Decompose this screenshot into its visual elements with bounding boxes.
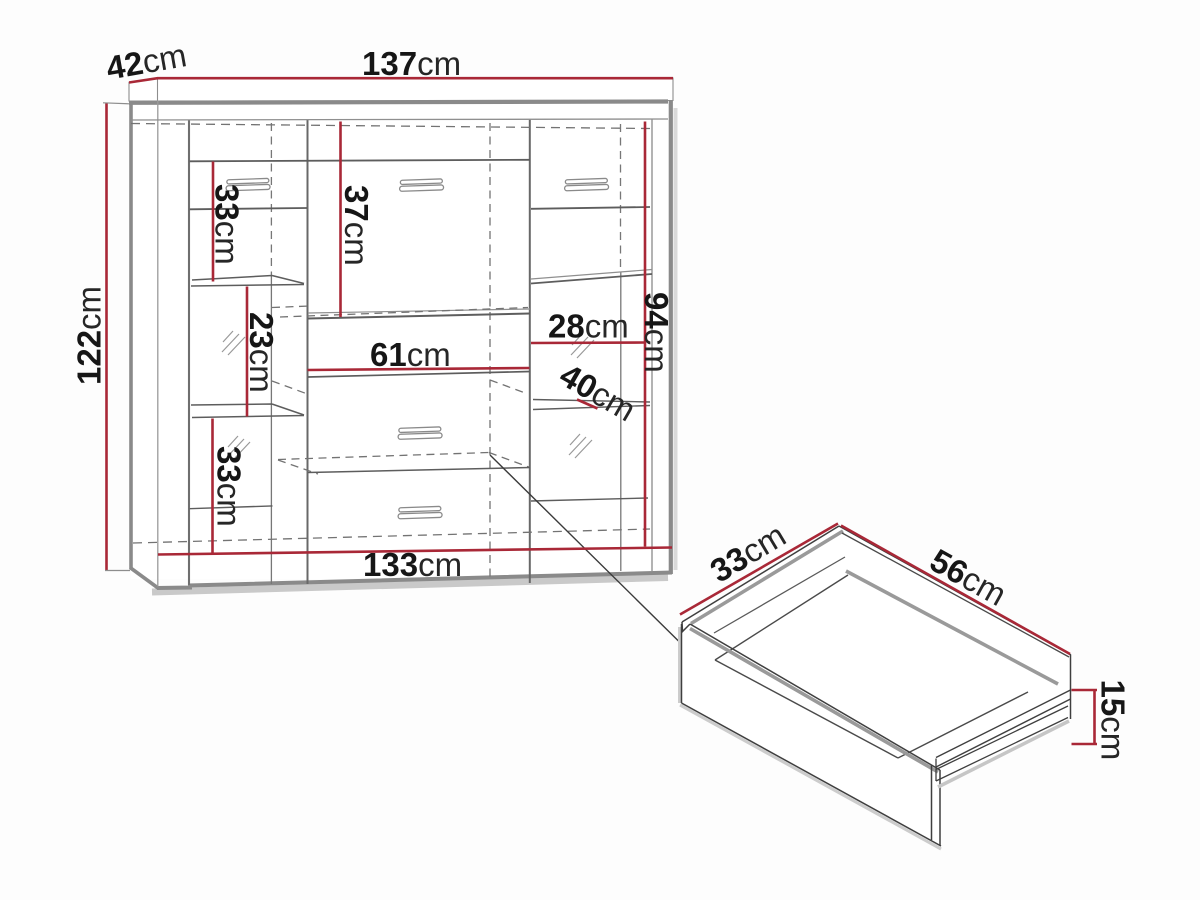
svg-text:15cm: 15cm <box>1095 680 1132 761</box>
